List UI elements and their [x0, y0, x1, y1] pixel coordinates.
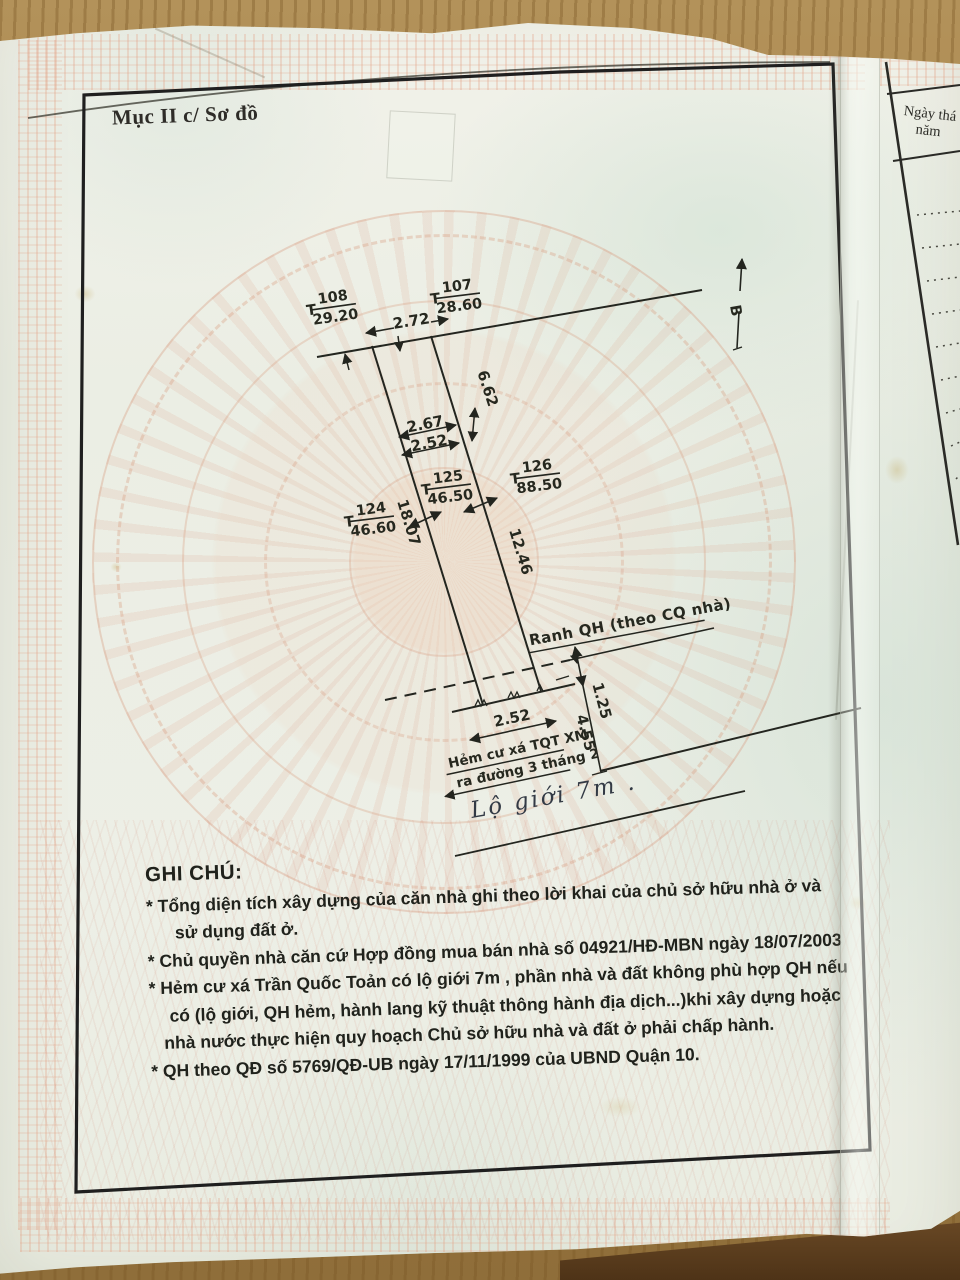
emblem-ring — [349, 467, 539, 657]
tape-piece-top — [386, 110, 455, 181]
section-title: Mục II c/ Sơ đồ — [112, 100, 259, 130]
tape-strip-spine — [840, 34, 880, 1256]
emblem-watermark — [92, 210, 796, 914]
guilloche-border-right — [880, 40, 960, 86]
notes-block: GHI CHÚ: * Tổng diện tích xây dựng của c… — [145, 839, 876, 1086]
document-page: 2.72 2.67 2.52 6.62 18.07 12.46 2.52 1.2… — [0, 0, 960, 1280]
paper-stain — [880, 450, 914, 490]
paper-stain — [70, 282, 100, 306]
paper-stain — [590, 1092, 650, 1122]
paper-stain — [108, 560, 124, 574]
emblem-ring — [264, 382, 624, 742]
guilloche-border-top — [28, 34, 865, 90]
photo-of-document: 2.72 2.67 2.52 6.62 18.07 12.46 2.52 1.2… — [0, 0, 960, 1280]
